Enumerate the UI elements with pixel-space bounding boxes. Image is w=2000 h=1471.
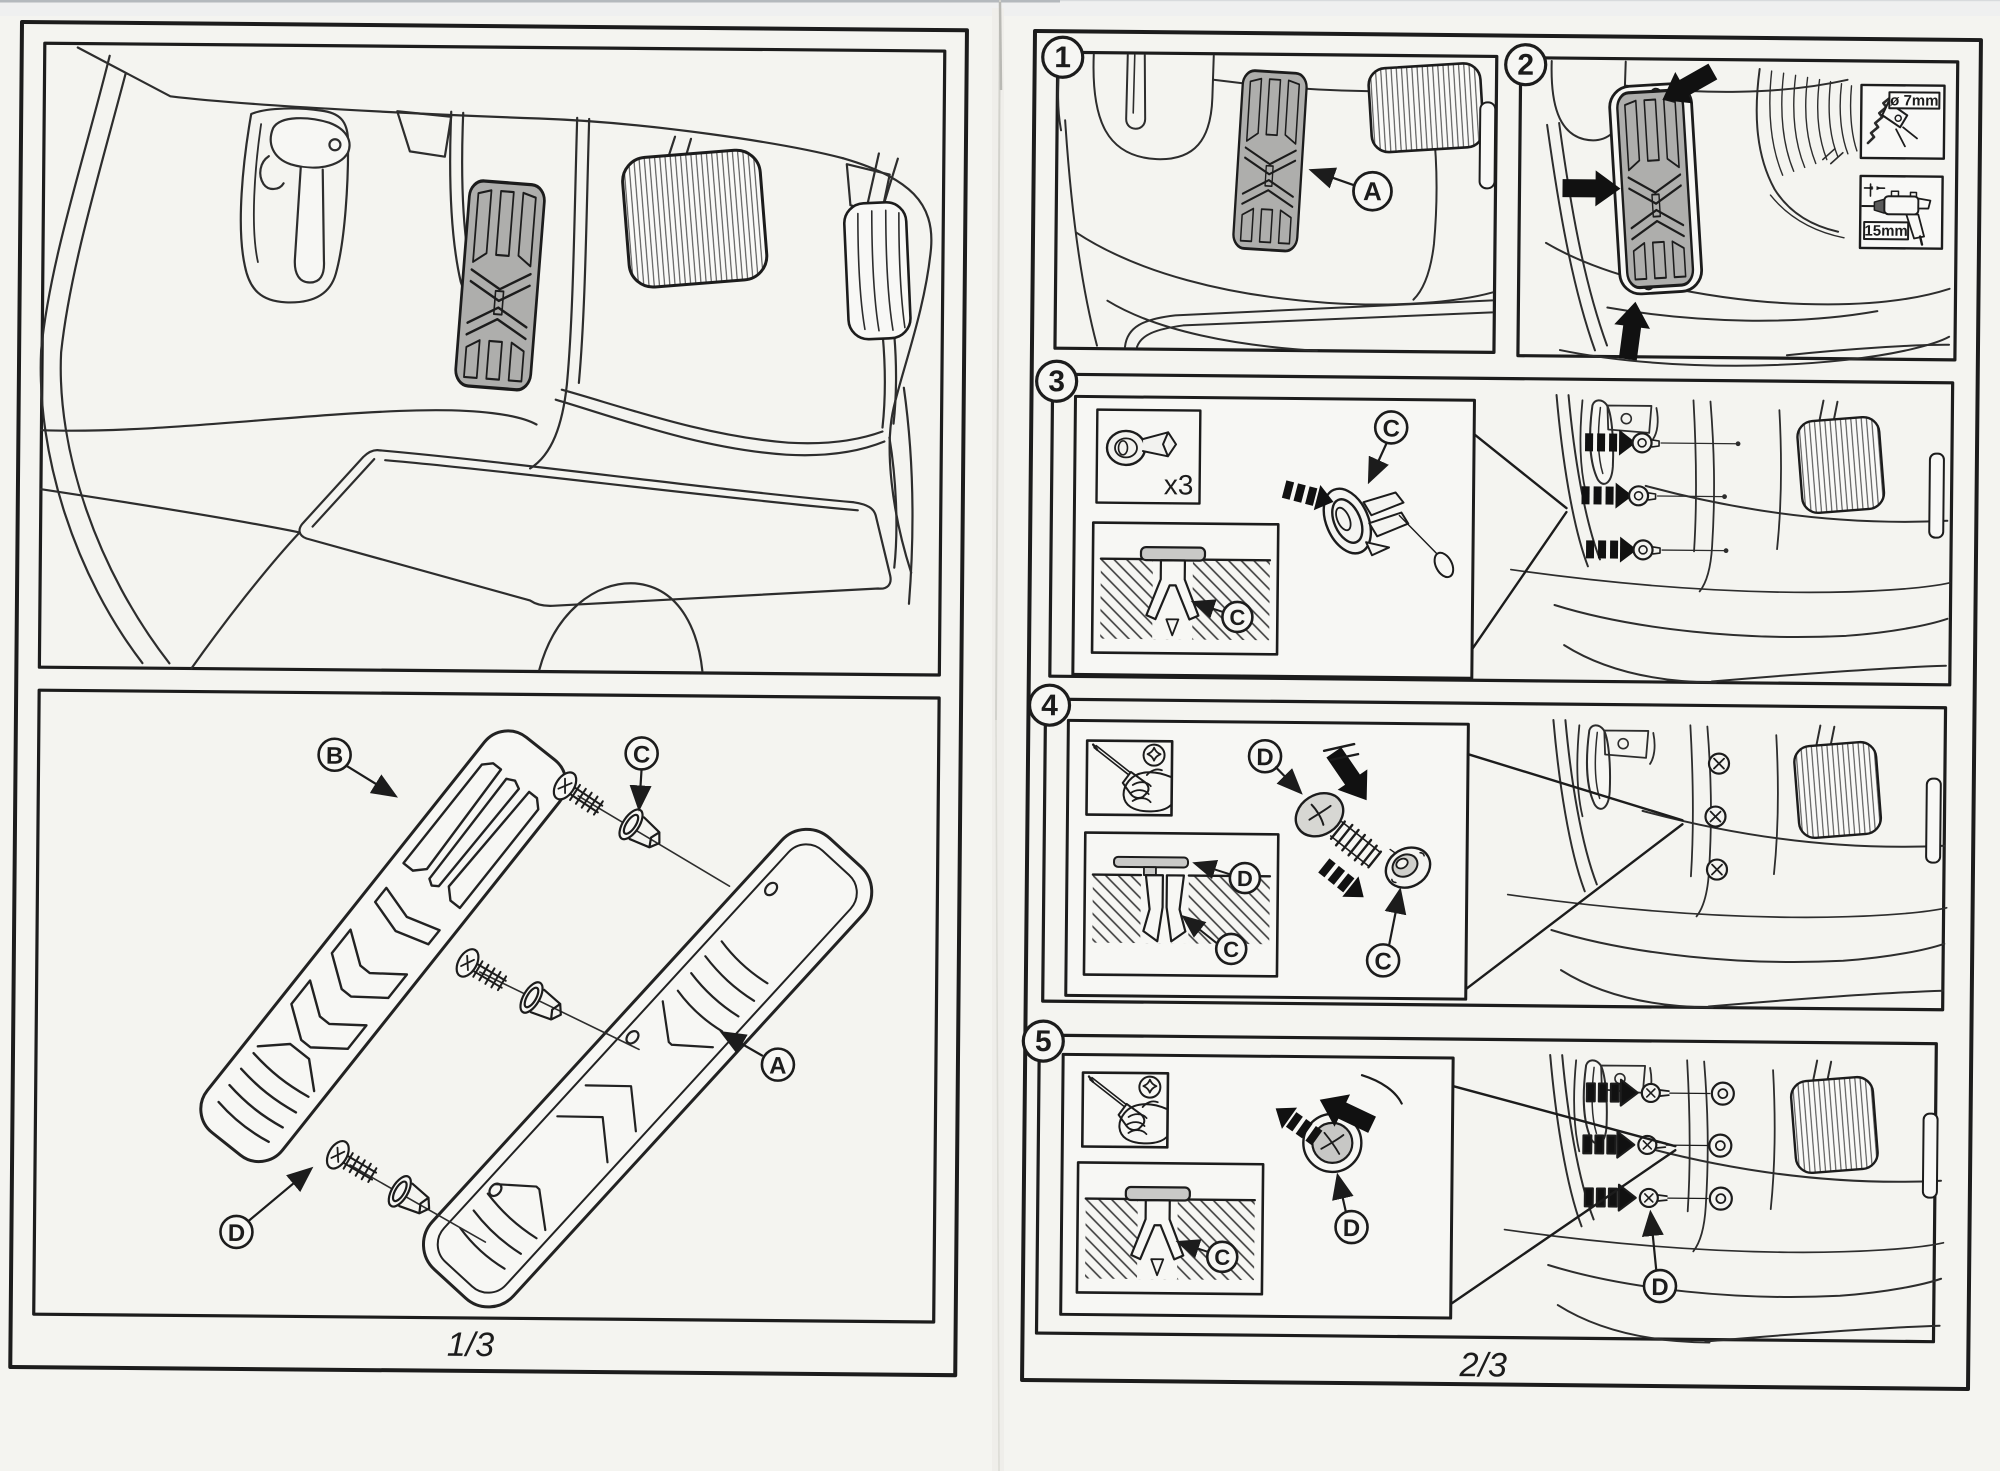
svg-text:C: C	[633, 741, 651, 768]
svg-text:B: B	[326, 743, 344, 770]
svg-text:A: A	[769, 1053, 787, 1080]
svg-text:C: C	[1374, 948, 1392, 975]
svg-text:5: 5	[1035, 1025, 1052, 1058]
svg-text:3: 3	[1048, 365, 1065, 398]
svg-text:A: A	[1363, 176, 1382, 206]
svg-text:1/3: 1/3	[447, 1326, 495, 1364]
svg-text:4: 4	[1041, 689, 1058, 722]
svg-text:C: C	[1382, 415, 1400, 442]
svg-text:2: 2	[1517, 49, 1534, 82]
svg-text:D: D	[1237, 866, 1253, 891]
svg-text:2/3: 2/3	[1458, 1346, 1507, 1384]
svg-text:x3: x3	[1164, 469, 1194, 500]
svg-text:D: D	[1343, 1215, 1361, 1242]
svg-text:D: D	[1256, 744, 1274, 771]
svg-text:15mm: 15mm	[1864, 222, 1908, 239]
svg-text:D: D	[228, 1220, 246, 1247]
svg-text:ø 7mm: ø 7mm	[1890, 92, 1939, 109]
svg-text:D: D	[1651, 1274, 1669, 1301]
svg-text:C: C	[1223, 937, 1239, 962]
svg-text:1: 1	[1054, 41, 1071, 74]
